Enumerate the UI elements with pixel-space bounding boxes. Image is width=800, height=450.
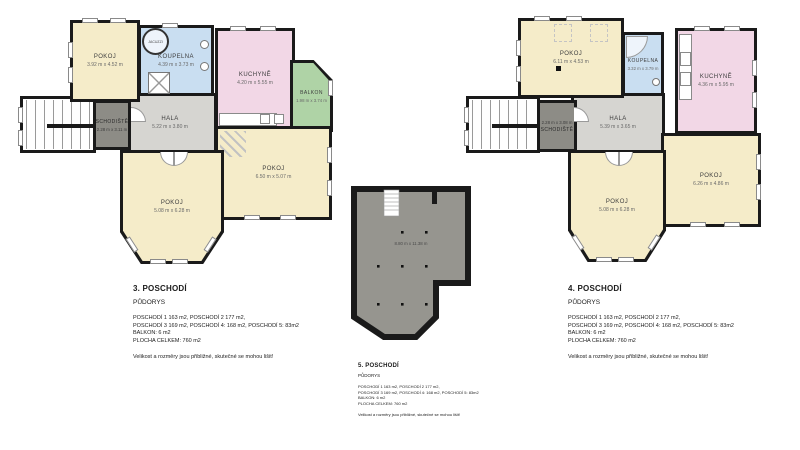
- toilet-icon: [200, 40, 209, 49]
- floor-title: 4. POSCHODÍ: [568, 284, 778, 293]
- room-dims: 5.39 m x 3.65 m: [600, 124, 636, 130]
- floor-subtitle: PŮDORYS: [133, 299, 343, 306]
- kitchen-counter: [679, 34, 692, 100]
- disclaimer: Velikost a rozměry jsou přibližné, skute…: [358, 412, 518, 417]
- room-dims: 2.28 m x 3.08 m: [542, 120, 573, 125]
- room-label: HALA: [161, 116, 178, 122]
- room-label: POKOJ: [161, 200, 183, 206]
- room-dims: 6.50 m x 5.07 m: [256, 174, 292, 180]
- room-dims: 3.92 m x 4.52 m: [87, 62, 123, 68]
- window: [328, 80, 333, 96]
- window: [724, 222, 740, 227]
- window: [596, 257, 612, 262]
- area-line: BALKON: 6 m2: [568, 330, 778, 338]
- room-label: POKOJ: [94, 54, 116, 60]
- window: [280, 215, 296, 220]
- stair-divider: [47, 124, 93, 128]
- room-balkon: BALKON 1.98 m x 3.74 m: [290, 60, 333, 132]
- room-label: SCHODIŠTĚ: [541, 127, 574, 133]
- disclaimer: Velikost a rozměry jsou přibližné, skute…: [568, 354, 778, 360]
- window: [756, 184, 761, 200]
- ceiling-outline: [554, 24, 572, 42]
- area-line: POSCHODÍ 3 169 m2, POSCHODÍ 4: 168 m2, P…: [568, 323, 778, 331]
- room-label: HALA: [609, 116, 626, 122]
- room-dims: 2.28 m x 3.11 m: [97, 127, 128, 132]
- window: [756, 154, 761, 170]
- floor-title: 3. POSCHODÍ: [133, 284, 343, 293]
- floor-title: 5. POSCHODÍ: [358, 363, 518, 369]
- window: [172, 259, 188, 264]
- ceiling-outline: [590, 24, 608, 42]
- room-label: KUCHYNĚ: [700, 74, 732, 80]
- room-dims: 3.32 m x 3.79 m: [628, 66, 659, 71]
- room-label: POKOJ: [700, 173, 722, 179]
- window: [68, 42, 73, 58]
- room-label: KOUPELNA: [628, 58, 658, 64]
- room-schodiste: SCHODIŠTĚ 2.28 m x 3.11 m: [93, 100, 131, 150]
- jacuzzi-icon: JACUZZI: [142, 28, 169, 55]
- window: [752, 92, 757, 108]
- window: [690, 222, 706, 227]
- room-label: BALKON: [300, 90, 323, 96]
- sink-icon: [680, 72, 691, 86]
- room-hala: HALA 5.39 m x 3.65 m: [571, 93, 665, 153]
- room-dims: 5.08 m x 6.28 m: [154, 208, 190, 214]
- room-dims: 6.11 m x 4.53 m: [553, 59, 588, 65]
- window: [82, 18, 98, 23]
- window: [752, 60, 757, 76]
- stair-divider: [492, 124, 538, 128]
- area-line: POSCHODÍ 1 163 m2, POSCHODÍ 2 177 m2,: [133, 315, 343, 323]
- window: [464, 130, 469, 146]
- room-label: POKOJ: [560, 51, 582, 57]
- room-label: KOUPELNA: [158, 54, 194, 60]
- disclaimer: Velikost a rozměry jsou přibližné, skute…: [133, 354, 343, 360]
- room-dims: 8.80 m x 11.38 m: [395, 241, 428, 246]
- area-line: PLOCHA CELKEM: 760 m2: [133, 338, 343, 346]
- area-line: POSCHODÍ 1 163 m2, POSCHODÍ 2 177 m2,: [568, 315, 778, 323]
- window: [18, 107, 23, 123]
- window: [516, 66, 521, 82]
- window: [18, 130, 23, 146]
- toilet-icon: [200, 62, 209, 71]
- floor-subtitle: PŮDORYS: [358, 373, 518, 378]
- window: [230, 26, 246, 31]
- room-pokoj-top: POKOJ 3.92 m x 4.52 m: [70, 20, 140, 102]
- room-label: KUCHYNĚ: [239, 72, 271, 78]
- jacuzzi-label: JACUZZI: [148, 40, 162, 44]
- window: [534, 16, 550, 21]
- window: [464, 107, 469, 123]
- attic-outline: [354, 189, 468, 337]
- room-pokoj-right: POKOJ 6.26 m x 4.86 m: [661, 133, 761, 227]
- window: [516, 40, 521, 56]
- wall-stub: [432, 189, 437, 204]
- window: [110, 18, 126, 23]
- plan3-info: 3. POSCHODÍ PŮDORYS POSCHODÍ 1 163 m2, P…: [133, 284, 343, 360]
- fridge-icon: [680, 52, 691, 66]
- area-line: PLOCHA CELKEM: 760 m2: [358, 401, 518, 407]
- stove-icon: [274, 114, 284, 124]
- room-dims: 5.08 m x 6.28 m: [599, 207, 635, 213]
- window: [68, 67, 73, 83]
- oven-icon: [260, 114, 270, 124]
- room-dims: 4.39 m x 3.73 m: [158, 62, 194, 68]
- plan4-info: 4. POSCHODÍ PŮDORYS POSCHODÍ 1 163 m2, P…: [568, 284, 778, 360]
- floorplan-4: HALA 5.39 m x 3.65 m 2.28 m x 3.08 m SCH…: [462, 12, 764, 274]
- window: [724, 26, 740, 31]
- room-dims: 4.20 m x 5.55 m: [237, 80, 273, 86]
- window: [260, 26, 276, 31]
- window: [162, 23, 178, 28]
- furniture-dot: [556, 66, 561, 71]
- window: [244, 215, 260, 220]
- area-line: BALKON: 6 m2: [133, 330, 343, 338]
- room-dims: 4.36 m x 5.95 m: [698, 82, 734, 88]
- room-dims: 6.26 m x 4.86 m: [693, 181, 729, 187]
- window: [694, 26, 710, 31]
- floorplan-5: 8.80 m x 11.38 m: [350, 182, 480, 354]
- room-hala: HALA 5.22 m x 3.80 m: [123, 93, 217, 153]
- window: [327, 180, 332, 196]
- window: [618, 257, 634, 262]
- floorplan-3: HALA 5.22 m x 3.80 m SCHODIŠTĚ 2.28 m x …: [12, 12, 334, 274]
- area-line: PLOCHA CELKEM: 760 m2: [568, 338, 778, 346]
- room-label: POKOJ: [606, 199, 628, 205]
- area-line: POSCHODÍ 3 169 m2, POSCHODÍ 4: 168 m2, P…: [133, 323, 343, 331]
- room-label: POKOJ: [262, 166, 284, 172]
- room-label: SCHODIŠTĚ: [96, 119, 129, 125]
- room-schodiste: 2.28 m x 3.08 m SCHODIŠTĚ: [537, 100, 577, 152]
- window: [327, 147, 332, 163]
- room-dims: 1.98 m x 3.74 m: [296, 98, 327, 103]
- window: [566, 16, 582, 21]
- plan5-info: 5. POSCHODÍ PŮDORYS POSCHODÍ 1 163 m2, P…: [358, 363, 518, 417]
- shower-icon: [148, 72, 170, 94]
- floor-subtitle: PŮDORYS: [568, 299, 778, 306]
- toilet-icon: [652, 78, 660, 86]
- window: [150, 259, 166, 264]
- room-dims: 5.22 m x 3.80 m: [152, 124, 188, 130]
